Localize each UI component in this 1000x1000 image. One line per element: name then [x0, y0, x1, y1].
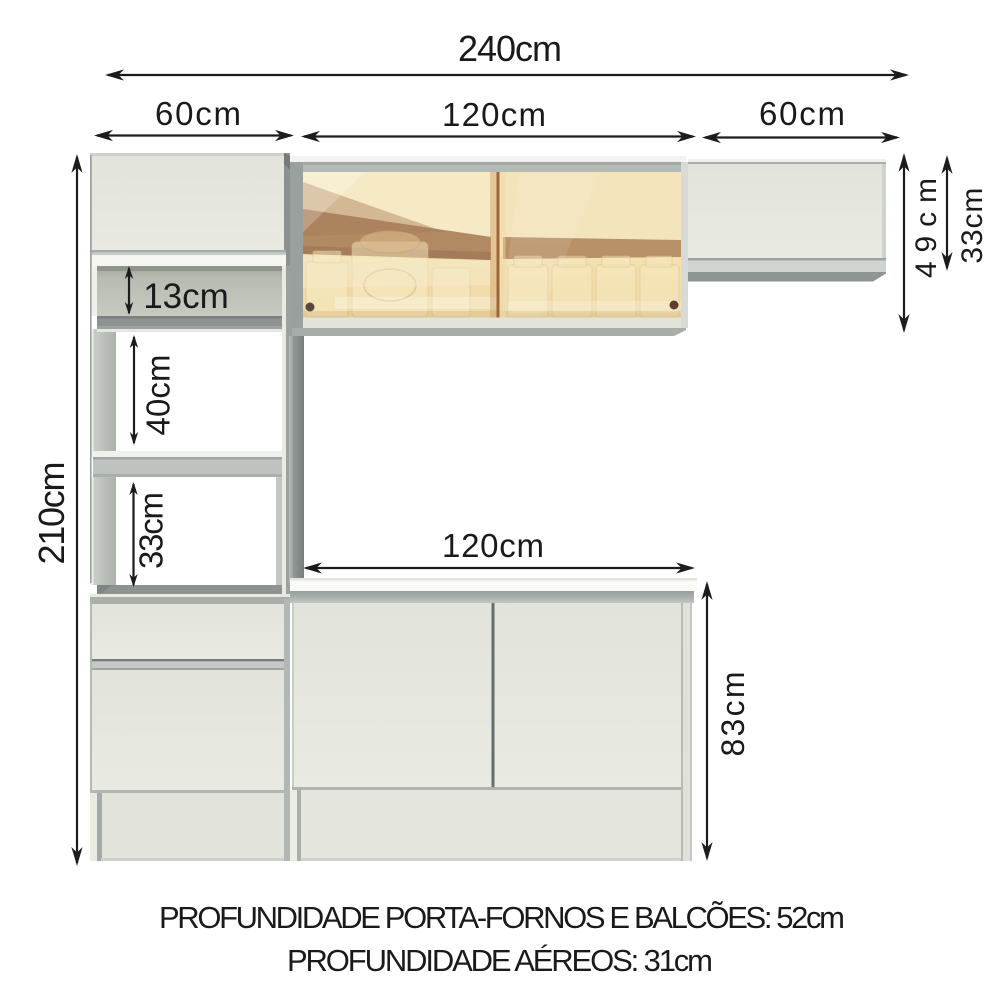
svg-text:33cm: 33cm: [956, 188, 989, 264]
svg-text:120cm: 120cm: [442, 96, 546, 133]
svg-text:PROFUNDIDADE PORTA-FORNOS E BA: PROFUNDIDADE PORTA-FORNOS E BALCÕES: 52c…: [159, 900, 845, 935]
svg-text:210cm: 210cm: [31, 462, 72, 565]
svg-text:13cm: 13cm: [143, 277, 229, 316]
svg-text:40cm: 40cm: [140, 355, 177, 436]
svg-text:PROFUNDIDADE AÉREOS: 31cm: PROFUNDIDADE AÉREOS: 31cm: [287, 943, 713, 978]
svg-text:83cm: 83cm: [715, 672, 751, 757]
svg-text:60cm: 60cm: [155, 95, 241, 132]
svg-text:33cm: 33cm: [133, 492, 170, 569]
svg-text:240cm: 240cm: [458, 28, 562, 69]
svg-text:120cm: 120cm: [442, 527, 544, 564]
svg-text:60cm: 60cm: [759, 95, 845, 132]
